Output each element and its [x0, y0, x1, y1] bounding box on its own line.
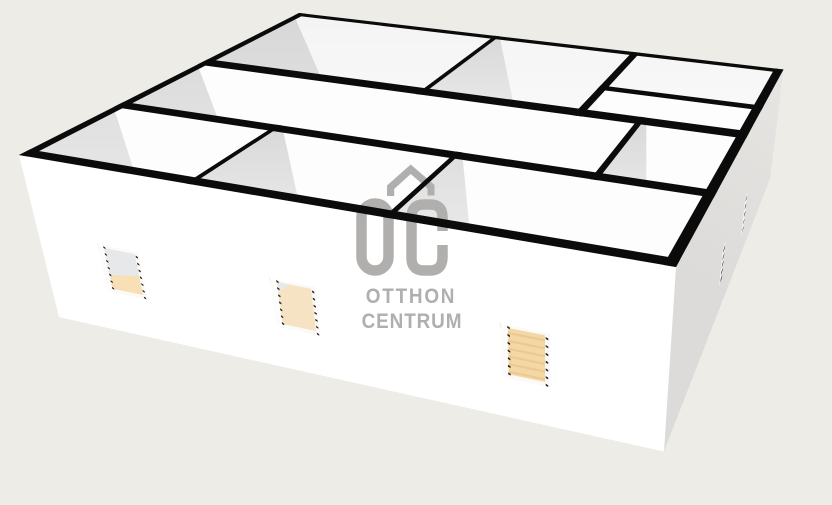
svg-text:CENTRUM: CENTRUM	[362, 310, 463, 333]
svg-text:OTTHON: OTTHON	[366, 285, 456, 308]
